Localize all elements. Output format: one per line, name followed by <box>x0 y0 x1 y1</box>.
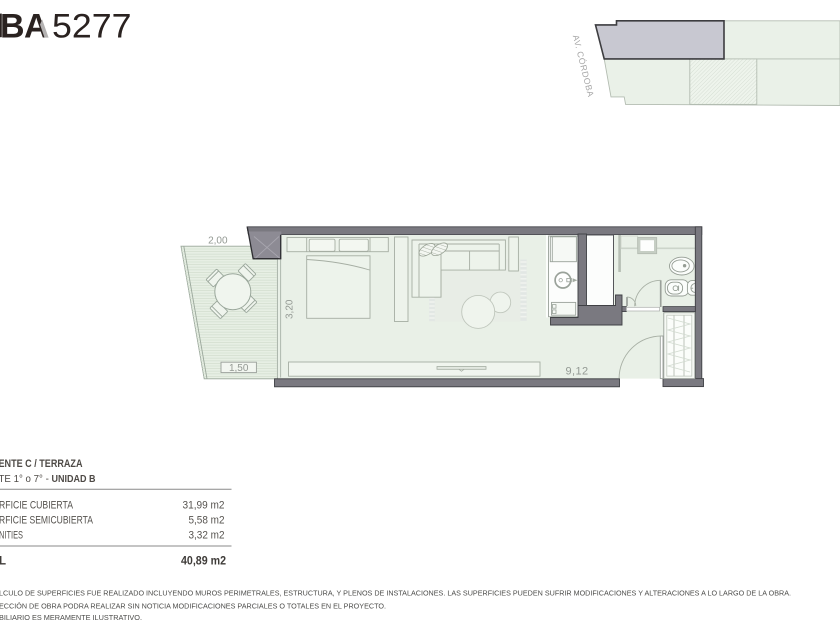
svg-text:1,50: 1,50 <box>229 363 249 374</box>
svg-text:NITIES: NITIES <box>0 530 23 542</box>
svg-text:RFICIE CUBIERTA: RFICIE CUBIERTA <box>0 499 74 511</box>
svg-text:LCULO DE SUPERFICIES FUE REALI: LCULO DE SUPERFICIES FUE REALIZADO INCLU… <box>0 589 791 598</box>
svg-text:ENTE C / TERRAZA: ENTE C / TERRAZA <box>0 458 83 470</box>
svg-text:3,20: 3,20 <box>284 299 295 319</box>
svg-text:ECCIÓN DE OBRA PODRA REALIZAR: ECCIÓN DE OBRA PODRA REALIZAR SIN NOTICI… <box>0 602 386 611</box>
svg-text:5277: 5277 <box>52 8 132 46</box>
svg-text:3,32 m2: 3,32 m2 <box>189 530 225 542</box>
svg-text:L: L <box>0 556 6 568</box>
svg-text:2,00: 2,00 <box>208 236 228 247</box>
svg-text:BILIARIO ES MERAMENTE ILUSTRAT: BILIARIO ES MERAMENTE ILUSTRATIVO. <box>0 613 142 622</box>
svg-text:RFICIE SEMICUBIERTA: RFICIE SEMICUBIERTA <box>0 515 94 527</box>
svg-text:40,89 m2: 40,89 m2 <box>181 556 226 568</box>
svg-text:TE 1° o 7° - UNIDAD B: TE 1° o 7° - UNIDAD B <box>0 473 96 485</box>
svg-text:5,58 m2: 5,58 m2 <box>189 515 225 527</box>
svg-text:9,12: 9,12 <box>566 366 589 378</box>
svg-text:31,99 m2: 31,99 m2 <box>183 499 225 511</box>
